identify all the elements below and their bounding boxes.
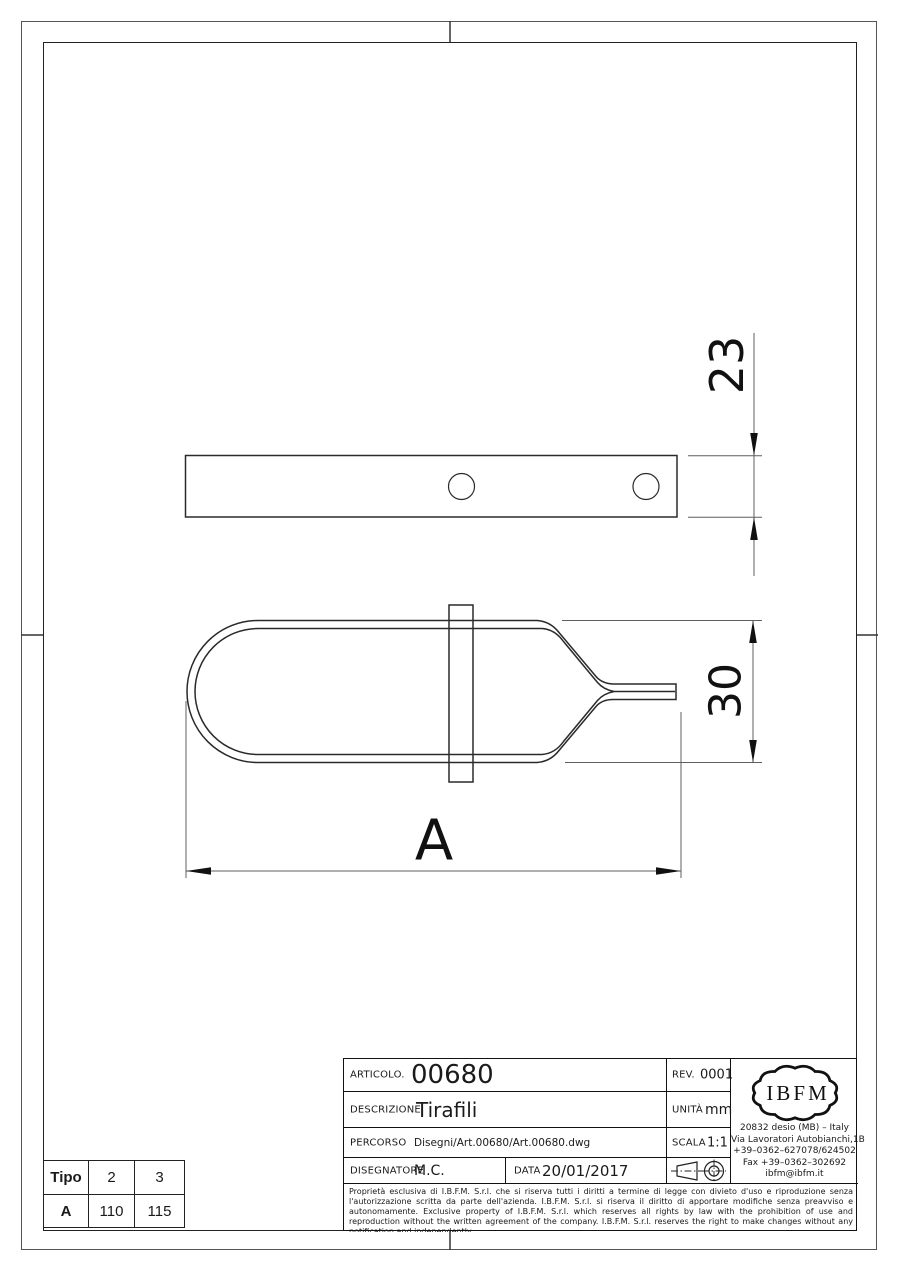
scala-cell: SCALA 1:1 — [667, 1128, 731, 1158]
articolo-cell: ARTICOLO. 00680 — [344, 1059, 667, 1092]
table-cell-a-label: A — [44, 1194, 89, 1227]
descrizione-label: DESCRIZIONE — [350, 1104, 421, 1115]
drawing-sheet: 23 30 A ARTICOLO. 00680 REV. 0001 DESCRI… — [0, 0, 900, 1272]
dim-label-30: 30 — [701, 663, 752, 719]
company-cell: IBFM 20832 desio (MB) – Italy Via Lavora… — [731, 1059, 858, 1184]
address-line: Fax +39–0362–302692 — [731, 1158, 858, 1170]
table-header-type2: 2 — [89, 1161, 135, 1194]
rev-cell: REV. 0001 — [667, 1059, 731, 1092]
percorso-value: Disegni/Art.00680/Art.00680.dwg — [414, 1137, 590, 1149]
bar-hole-left — [449, 474, 475, 500]
size-variant-table: Tipo 2 3 A 110 115 — [43, 1160, 185, 1228]
first-angle-projection-icon — [667, 1158, 731, 1184]
percorso-cell: PERCORSO Disegni/Art.00680/Art.00680.dwg — [344, 1128, 667, 1158]
articolo-value: 00680 — [411, 1060, 494, 1090]
address-line: 20832 desio (MB) – Italy — [731, 1123, 858, 1135]
rev-value: 0001 — [700, 1068, 733, 1083]
table-header-tipo: Tipo — [44, 1161, 89, 1194]
bar-hole-right — [633, 474, 659, 500]
dim-label-A: A — [415, 809, 453, 874]
unita-label: UNITÀ — [672, 1104, 703, 1115]
crossbar — [449, 605, 473, 782]
percorso-label: PERCORSO — [350, 1137, 406, 1148]
data-cell: DATA 20/01/2017 — [506, 1158, 667, 1184]
address-line: +39–0362–627078/624502 — [731, 1146, 858, 1158]
scala-label: SCALA — [672, 1137, 706, 1148]
disegnatore-label: DISEGNATORE — [350, 1165, 424, 1176]
disegnatore-cell: DISEGNATORE M.C. — [344, 1158, 506, 1184]
descrizione-cell: DESCRIZIONE Tirafili — [344, 1092, 667, 1128]
unita-value: mm — [705, 1102, 732, 1118]
ibfm-logo-text: IBFM — [766, 1081, 830, 1105]
ibfm-logo: IBFM — [742, 1062, 848, 1124]
part-top-view-bar — [186, 456, 678, 518]
title-block: ARTICOLO. 00680 REV. 0001 DESCRIZIONE Ti… — [343, 1058, 857, 1231]
articolo-label: ARTICOLO. — [350, 1070, 405, 1081]
projection-symbol-cell — [667, 1158, 731, 1184]
unita-cell: UNITÀ mm — [667, 1092, 731, 1128]
rev-label: REV. — [672, 1070, 695, 1081]
data-label: DATA — [514, 1165, 541, 1176]
disegnatore-value: M.C. — [414, 1163, 445, 1179]
dim-label-23: 23 — [700, 336, 754, 395]
address-line: Via Lavoratori Autobianchi,1B — [731, 1135, 858, 1147]
data-value: 20/01/2017 — [542, 1162, 628, 1180]
company-address: 20832 desio (MB) – Italy Via Lavoratori … — [731, 1123, 858, 1181]
address-line: ibfm@ibfm.it — [731, 1169, 858, 1181]
descrizione-value: Tirafili — [416, 1098, 477, 1122]
table-header-type3: 3 — [135, 1161, 184, 1194]
scala-value: 1:1 — [707, 1135, 728, 1150]
table-cell-a-type3: 115 — [135, 1194, 184, 1227]
legal-notice: Proprietà esclusiva di I.B.F.M. S.r.l. c… — [344, 1184, 858, 1232]
table-cell-a-type2: 110 — [89, 1194, 135, 1227]
part-side-view-wire-loop — [187, 605, 676, 782]
